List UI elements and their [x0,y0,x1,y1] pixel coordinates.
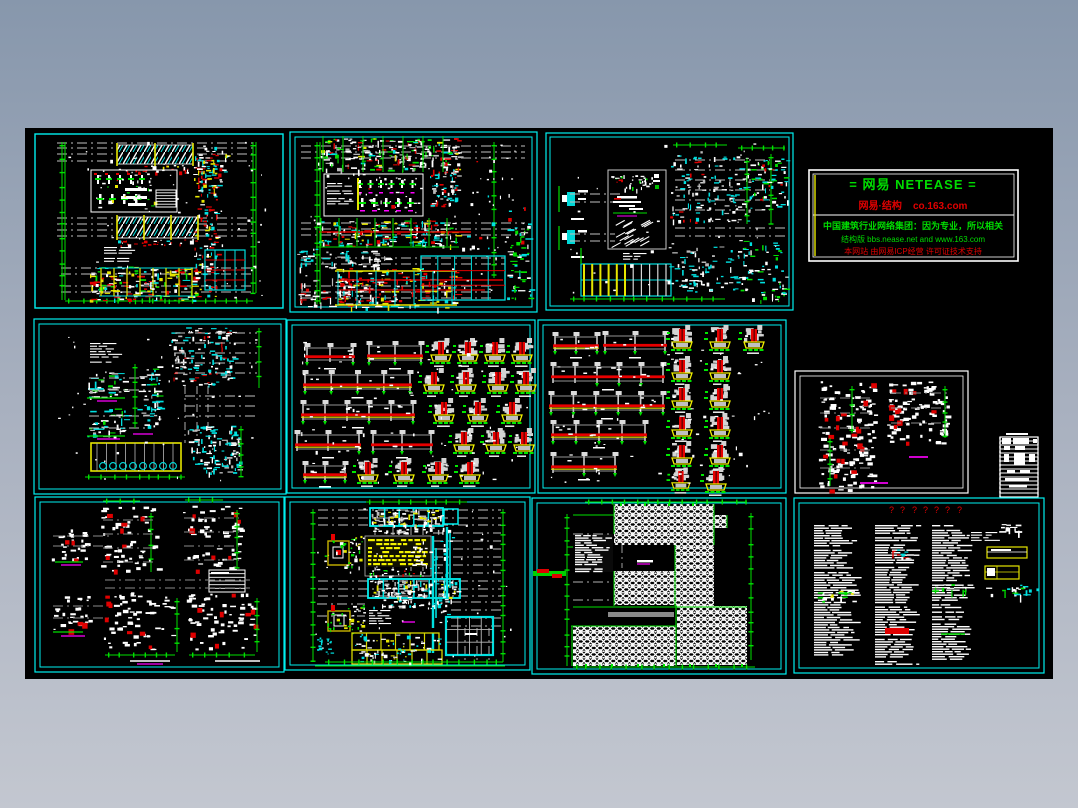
svg-text:网易·结构 co.163.com: 网易·结构 co.163.com [859,199,968,212]
svg-text:中国建筑行业网络集团：因为专业，所以相关: 中国建筑行业网络集团：因为专业，所以相关 [823,220,1003,231]
svg-text:本网站 由网易ICP经营 许可证技术支持: 本网站 由网易ICP经营 许可证技术支持 [844,246,982,256]
svg-text:结构版 bbs.nease.net and www.163: 结构版 bbs.nease.net and www.163.com [841,234,985,244]
svg-text:= 网易 NETEASE =: = 网易 NETEASE = [849,177,976,192]
